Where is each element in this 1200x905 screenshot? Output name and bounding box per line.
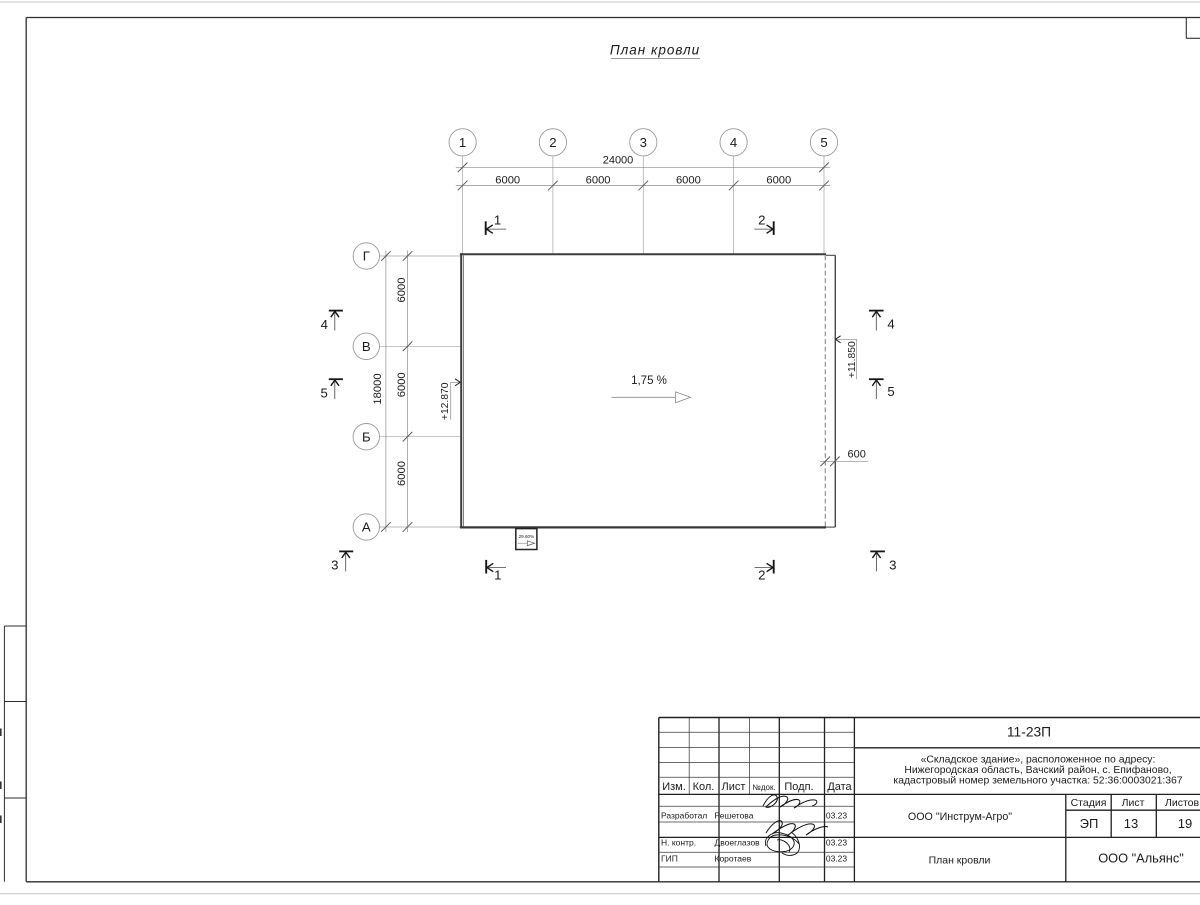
svg-text:Лист: Лист <box>722 781 746 793</box>
svg-text:18000: 18000 <box>372 373 384 404</box>
svg-text:600: 600 <box>848 448 866 460</box>
svg-text:№док.: №док. <box>752 783 775 792</box>
svg-text:11-23П: 11-23П <box>1007 725 1051 740</box>
svg-text:3: 3 <box>889 558 896 573</box>
svg-text:03.23: 03.23 <box>826 811 848 821</box>
svg-text:Подп.: Подп. <box>784 781 813 793</box>
svg-text:Решетова: Решетова <box>715 811 754 821</box>
svg-text:Г: Г <box>363 249 370 264</box>
svg-text:29.60%: 29.60% <box>519 534 535 539</box>
svg-text:1: 1 <box>494 568 501 583</box>
svg-text:Коротаев: Коротаев <box>715 854 752 864</box>
svg-text:Лист: Лист <box>1122 797 1145 809</box>
svg-text:А: А <box>362 520 371 535</box>
svg-text:ГИП: ГИП <box>661 854 678 864</box>
svg-text:5: 5 <box>820 135 827 150</box>
svg-text:Стадия: Стадия <box>1071 797 1107 809</box>
svg-text:3: 3 <box>640 135 647 150</box>
svg-text:кадастровый номер земельного у: кадастровый номер земельного участка: 52… <box>893 776 1182 787</box>
svg-text:3: 3 <box>331 558 338 573</box>
svg-text:+11.850: +11.850 <box>847 341 858 378</box>
svg-text:6000: 6000 <box>396 461 408 486</box>
svg-text:1,75 %: 1,75 % <box>631 375 667 387</box>
svg-text:Дата: Дата <box>827 781 852 793</box>
svg-text:5: 5 <box>887 384 894 399</box>
svg-text:План кровли: План кровли <box>929 855 991 867</box>
svg-text:2: 2 <box>758 568 765 583</box>
svg-text:Изм.: Изм. <box>662 781 686 793</box>
svg-text:ЭП: ЭП <box>1080 816 1099 831</box>
svg-text:План кровли: План кровли <box>610 43 700 58</box>
svg-text:6000: 6000 <box>676 175 701 187</box>
svg-text:Кол.: Кол. <box>693 781 715 793</box>
svg-text:Н. контр.: Н. контр. <box>661 838 696 848</box>
svg-text:24000: 24000 <box>603 155 634 167</box>
svg-text:Листов: Листов <box>1165 797 1200 809</box>
svg-text:19: 19 <box>1178 816 1192 831</box>
svg-text:«Складское здание», расположен: «Складское здание», расположенное по адр… <box>921 755 1156 766</box>
svg-text:4: 4 <box>321 317 328 332</box>
svg-text:6000: 6000 <box>495 175 520 187</box>
svg-text:В: В <box>362 339 371 354</box>
svg-text:ООО "Инструм-Агро": ООО "Инструм-Агро" <box>908 811 1012 823</box>
svg-text:1: 1 <box>459 135 466 150</box>
svg-text:4: 4 <box>887 317 894 332</box>
svg-text:2: 2 <box>758 212 765 227</box>
svg-text:Б: Б <box>362 429 371 444</box>
svg-text:1: 1 <box>494 212 501 227</box>
svg-text:6000: 6000 <box>396 372 408 397</box>
svg-text:2: 2 <box>549 135 556 150</box>
svg-text:6000: 6000 <box>766 175 791 187</box>
svg-text:13: 13 <box>1124 816 1138 831</box>
svg-text:Нижегородская область, Вачский: Нижегородская область, Вачский район, с.… <box>904 764 1171 776</box>
svg-text:6000: 6000 <box>396 278 408 303</box>
svg-text:5: 5 <box>321 386 328 401</box>
svg-text:Двоеглазов: Двоеглазов <box>715 838 761 848</box>
svg-text:4: 4 <box>730 135 737 150</box>
svg-text:Разработал: Разработал <box>661 811 707 821</box>
svg-text:ООО "Альянс": ООО "Альянс" <box>1098 851 1184 866</box>
svg-text:03.23: 03.23 <box>826 854 848 864</box>
svg-text:03.23: 03.23 <box>826 838 848 848</box>
svg-text:+12.870: +12.870 <box>440 382 451 420</box>
svg-text:6000: 6000 <box>586 175 611 187</box>
